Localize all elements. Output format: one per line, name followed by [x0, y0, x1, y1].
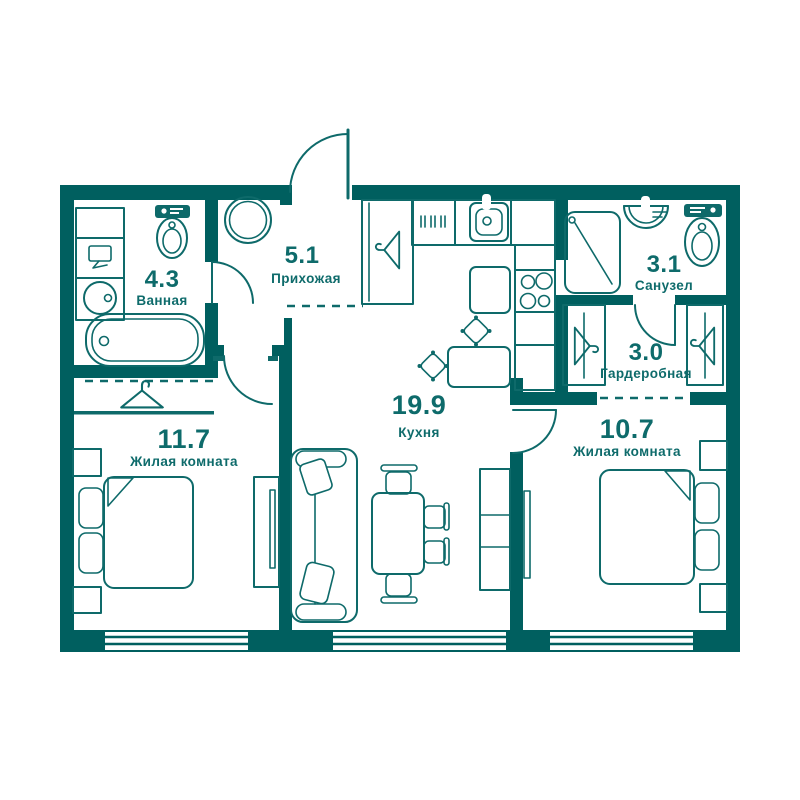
wall-wardrobe-left	[555, 295, 568, 392]
nightstand	[700, 441, 727, 470]
window	[105, 632, 248, 650]
wall-living2-top-a	[510, 392, 597, 405]
wall-top-right	[352, 185, 740, 200]
wall-toilet-wardrobe-a	[555, 295, 633, 305]
closet-left	[563, 305, 605, 385]
hanger-icon	[575, 328, 598, 365]
wall-bath-right-a	[205, 185, 218, 262]
wall-top-left	[60, 185, 292, 200]
kitchen-sideboard	[480, 469, 510, 590]
room-name-living1: Жилая комната	[129, 454, 238, 469]
kitchen-island	[448, 267, 510, 387]
hanger-icon	[691, 328, 714, 365]
toilet-icon	[155, 205, 190, 258]
built-in-wardrobe	[74, 381, 214, 414]
nightstand	[73, 449, 101, 476]
room-area-living1: 11.7	[157, 424, 210, 454]
room-name-hallway: Прихожая	[271, 271, 341, 286]
room-area-living2: 10.7	[600, 414, 655, 444]
wall-hall-bottom-left	[205, 345, 224, 356]
boiler-icon	[89, 246, 111, 268]
shower-icon	[565, 212, 620, 293]
living1-door-arc	[213, 356, 278, 404]
wall-stub-kitchen	[284, 318, 292, 345]
chair-icon	[381, 574, 417, 603]
room-area-toilet: 3.1	[647, 251, 682, 278]
stove-icon	[521, 273, 553, 309]
chair-icon	[381, 465, 417, 494]
laundry-column	[76, 208, 124, 320]
hall-closet	[362, 200, 413, 304]
room-area-kitchen: 19.9	[392, 390, 447, 420]
room-area-wardrobe: 3.0	[629, 339, 664, 366]
toilet-icon	[684, 204, 722, 266]
hanger-icon	[121, 381, 163, 407]
windows	[105, 632, 693, 650]
appliance-vent-icon	[421, 216, 445, 227]
dining-table-icon	[372, 465, 449, 603]
stool-icon	[418, 351, 449, 382]
bed-icon	[79, 477, 193, 588]
tv-icon	[524, 491, 530, 578]
stool-icon	[461, 316, 492, 347]
room-living2	[524, 441, 727, 612]
wall-outer-left	[60, 185, 74, 652]
room-name-living2: Жилая комната	[572, 444, 681, 459]
chair-icon	[424, 538, 449, 565]
living2-door-arc	[513, 410, 556, 453]
room-area-bathroom: 4.3	[145, 266, 180, 293]
wall-outer-right	[726, 185, 740, 652]
floor-plan-page: 4.3 Ванная 5.1 Прихожая 3.1 Санузел 3.0 …	[0, 0, 800, 800]
nightstand	[700, 584, 727, 612]
room-living1	[73, 381, 279, 613]
room-name-toilet: Санузел	[635, 278, 693, 293]
window	[333, 632, 506, 650]
bathroom-door-arc	[212, 262, 253, 303]
room-name-kitchen: Кухня	[398, 425, 439, 440]
room-bathroom	[76, 205, 204, 366]
kitchen-side-counter	[515, 245, 555, 390]
bed-icon	[600, 470, 719, 584]
closet-right	[687, 305, 723, 385]
bathtub-icon	[86, 314, 204, 366]
entry-door-arc	[290, 130, 348, 198]
nightstand	[73, 587, 101, 613]
chair-icon	[424, 503, 449, 530]
room-name-wardrobe: Гардеробная	[600, 366, 692, 381]
room-area-hallway: 5.1	[285, 242, 320, 269]
window	[550, 632, 693, 650]
wall-kitchen-toilet	[555, 185, 568, 260]
kitchen-sink-icon	[470, 194, 508, 241]
washing-machine-icon	[84, 282, 116, 314]
floor-plan: 4.3 Ванная 5.1 Прихожая 3.1 Санузел 3.0 …	[0, 0, 800, 800]
hanger-icon	[376, 232, 399, 269]
tv-console	[254, 477, 279, 587]
wall-toilet-wardrobe-b	[675, 295, 740, 305]
room-name-bathroom: Ванная	[136, 293, 187, 308]
wall-living2-top-b	[690, 392, 740, 405]
kitchen-top-counter	[412, 194, 555, 245]
entry-door-jamb	[280, 196, 292, 205]
sink-icon	[624, 196, 668, 228]
sofa-icon	[291, 449, 357, 622]
round-table-icon	[225, 197, 271, 243]
wall-kitchen-living2	[510, 452, 523, 630]
